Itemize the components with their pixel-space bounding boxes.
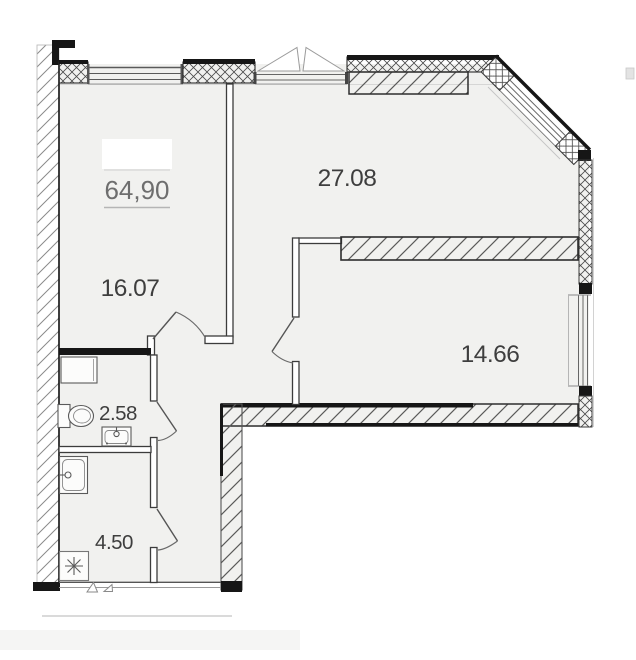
room-area-living: 27.08 xyxy=(318,165,377,192)
logo-placeholder-box xyxy=(102,139,172,169)
sill-a-cap xyxy=(59,60,88,64)
total-area-label: 64,90 xyxy=(104,175,169,205)
room-area-room14: 14.66 xyxy=(461,341,520,368)
toilet-icon xyxy=(58,405,94,428)
wall-hall-right-1 xyxy=(293,238,300,317)
room-area-bathroom: 2.58 xyxy=(99,402,137,425)
wall-bottom-right-room xyxy=(221,403,578,427)
wall-column-vertical xyxy=(220,404,242,592)
wall-left xyxy=(37,45,59,585)
wall-hall-right-2 xyxy=(293,362,300,405)
wall-bottom xyxy=(59,582,221,592)
bathroom-sink-icon xyxy=(102,427,131,446)
refrigerator-snowflake-icon xyxy=(60,552,89,581)
scan-shadow xyxy=(0,630,300,650)
window-opening-triangles-icon xyxy=(303,48,344,72)
wall-living-room14 xyxy=(341,237,578,260)
neighbor-wall-tick xyxy=(626,68,634,79)
shower-tray-icon xyxy=(61,357,97,383)
wall-corridor-top xyxy=(299,238,342,244)
wall-bedroom-living xyxy=(227,84,234,337)
floor-plan: 64,90 27.08 16.07 14.66 2.58 4.50 xyxy=(0,0,636,660)
floor-plan-page: 64,90 27.08 16.07 14.66 2.58 4.50 xyxy=(0,0,636,660)
wall-bathroom-top xyxy=(59,348,151,355)
window-opening-triangles-icon xyxy=(258,48,300,72)
wall-left-bottom-black xyxy=(33,582,60,591)
wall-hall-left-3 xyxy=(151,548,158,583)
window-sill-a xyxy=(59,62,88,83)
wall-bathroom-kitchen xyxy=(59,447,151,453)
wall-bedroom-door-jamb xyxy=(205,336,233,344)
wall-hall-left-1 xyxy=(151,355,158,401)
sill-c-cap xyxy=(347,55,499,60)
kitchen-washbasin-icon xyxy=(60,457,88,494)
sill-b-cap xyxy=(183,59,255,64)
room-area-kitchen: 4.50 xyxy=(95,531,133,554)
room-area-bedroom: 16.07 xyxy=(101,275,160,302)
wall-stub-top xyxy=(349,72,468,94)
window-sill-b xyxy=(183,62,255,83)
